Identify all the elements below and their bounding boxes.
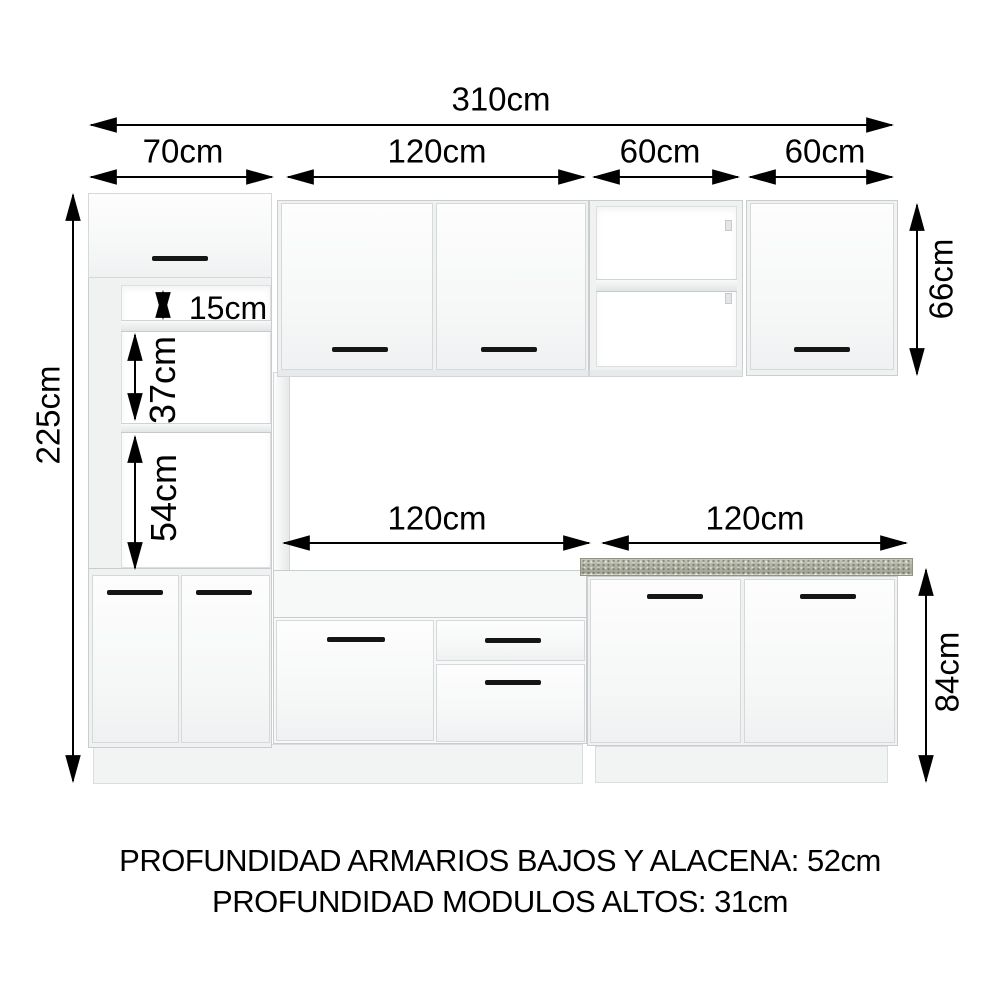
tower-top-cabinet-door bbox=[88, 193, 272, 278]
side-filler-panel bbox=[273, 372, 290, 571]
dim-label-upper-right-width: 60cm bbox=[785, 135, 866, 168]
upper-120-bottom-edge bbox=[277, 370, 589, 377]
tower-shelf-board-bottom bbox=[121, 423, 271, 433]
base-right-handle-right bbox=[800, 594, 856, 599]
upper-120-handle-right bbox=[481, 347, 537, 352]
upper-open-bottom-edge bbox=[589, 370, 743, 377]
dim-label-tower-width: 70cm bbox=[143, 135, 224, 168]
base-mid-top-rail bbox=[273, 570, 587, 618]
dim-label-upper-mid-width: 120cm bbox=[387, 135, 486, 168]
dim-label-total-height: 225cm bbox=[32, 365, 65, 464]
base-mid-drawer-top-handle bbox=[485, 638, 541, 643]
tower-base-door-right bbox=[181, 575, 270, 743]
dim-label-base-height: 84cm bbox=[931, 632, 964, 713]
countertop bbox=[580, 558, 913, 576]
base-right-door-left bbox=[590, 579, 741, 743]
dim-label-tower-gap: 15cm bbox=[189, 292, 267, 324]
dim-label-upper-height: 66cm bbox=[925, 239, 958, 320]
upper-120-door-left bbox=[281, 203, 433, 370]
tower-base-door-left bbox=[92, 575, 179, 743]
footer-depth-line-2: PROFUNDIDAD MODULOS ALTOS: 31cm bbox=[212, 884, 788, 920]
dim-label-base-right-width: 120cm bbox=[705, 502, 804, 535]
upper-open-hinge-bottom bbox=[725, 293, 732, 304]
dim-label-total-width: 310cm bbox=[451, 83, 550, 116]
dim-label-upper-open-width: 60cm bbox=[620, 135, 701, 168]
upper-120-handle-left bbox=[332, 347, 388, 352]
dim-label-tower-bottom-niche: 54cm bbox=[146, 454, 182, 542]
base-right-door-right bbox=[744, 579, 895, 743]
base-mid-drawer-bottom bbox=[436, 664, 585, 742]
upper-60-handle bbox=[794, 347, 850, 352]
base-right-handle-left bbox=[647, 594, 703, 599]
tower-top-cabinet-handle bbox=[152, 256, 208, 261]
dim-label-base-mid-width: 120cm bbox=[387, 502, 486, 535]
footer-depth-line-1: PROFUNDIDAD ARMARIOS BAJOS Y ALACENA: 52… bbox=[119, 843, 881, 879]
upper-60-door bbox=[750, 203, 894, 370]
base-mid-drawer-bottom-handle bbox=[485, 680, 541, 685]
plinth-right bbox=[595, 746, 888, 783]
plinth-left bbox=[93, 744, 583, 784]
upper-open-shelf bbox=[596, 279, 737, 292]
dim-label-tower-mid-niche: 37cm bbox=[145, 336, 181, 424]
kitchen-dimension-diagram: 310cm 70cm 120cm 60cm 60cm 225cm 66cm 15… bbox=[0, 0, 1000, 1000]
base-mid-door-handle bbox=[327, 637, 385, 642]
upper-120-door-right bbox=[436, 203, 586, 370]
tower-base-handle-right bbox=[196, 590, 252, 595]
upper-open-hinge-top bbox=[725, 220, 732, 231]
tower-base-handle-left bbox=[107, 590, 163, 595]
